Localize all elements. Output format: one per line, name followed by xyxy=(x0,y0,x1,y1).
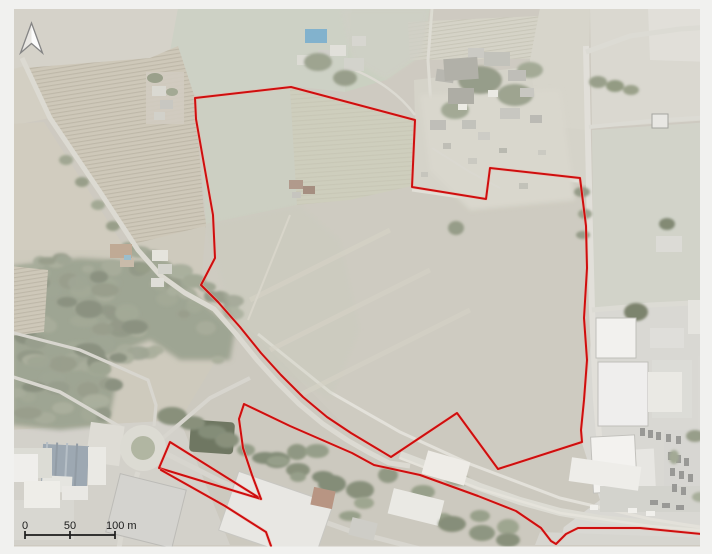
svg-text:50: 50 xyxy=(64,520,76,532)
svg-text:0: 0 xyxy=(22,520,28,532)
svg-text:100 m: 100 m xyxy=(106,520,137,532)
